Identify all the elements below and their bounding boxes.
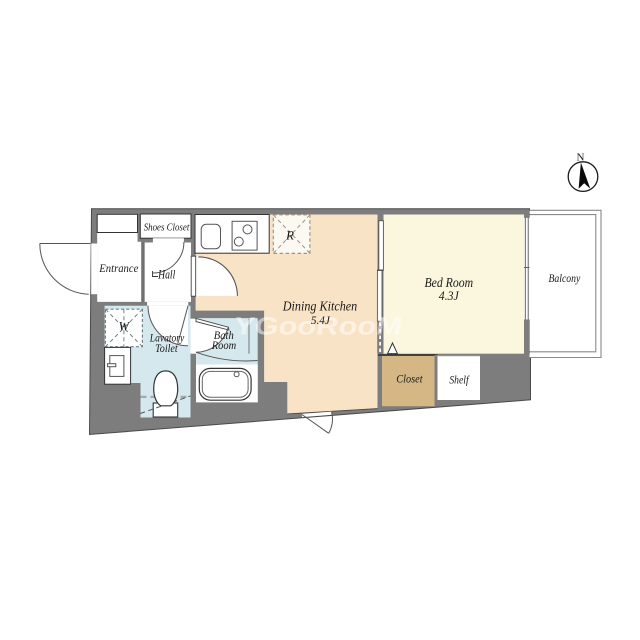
svg-text:Dining Kitchen: Dining Kitchen — [282, 299, 358, 314]
svg-text:5.4J: 5.4J — [311, 313, 331, 327]
svg-text:Toilet: Toilet — [155, 343, 178, 355]
svg-text:N: N — [577, 152, 585, 164]
svg-text:Hall: Hall — [157, 267, 175, 281]
svg-text:W: W — [119, 320, 131, 334]
svg-text:Shoes Closet: Shoes Closet — [144, 222, 190, 234]
svg-text:Entrance: Entrance — [98, 261, 138, 275]
svg-text:4.3J: 4.3J — [439, 289, 460, 303]
svg-text:Room: Room — [211, 340, 236, 352]
svg-text:R: R — [285, 228, 294, 243]
svg-text:Shelf: Shelf — [449, 373, 470, 387]
svg-text:Balcony: Balcony — [549, 273, 582, 285]
svg-text:Bed Room: Bed Room — [424, 275, 473, 290]
svg-text:Closet: Closet — [396, 372, 423, 386]
